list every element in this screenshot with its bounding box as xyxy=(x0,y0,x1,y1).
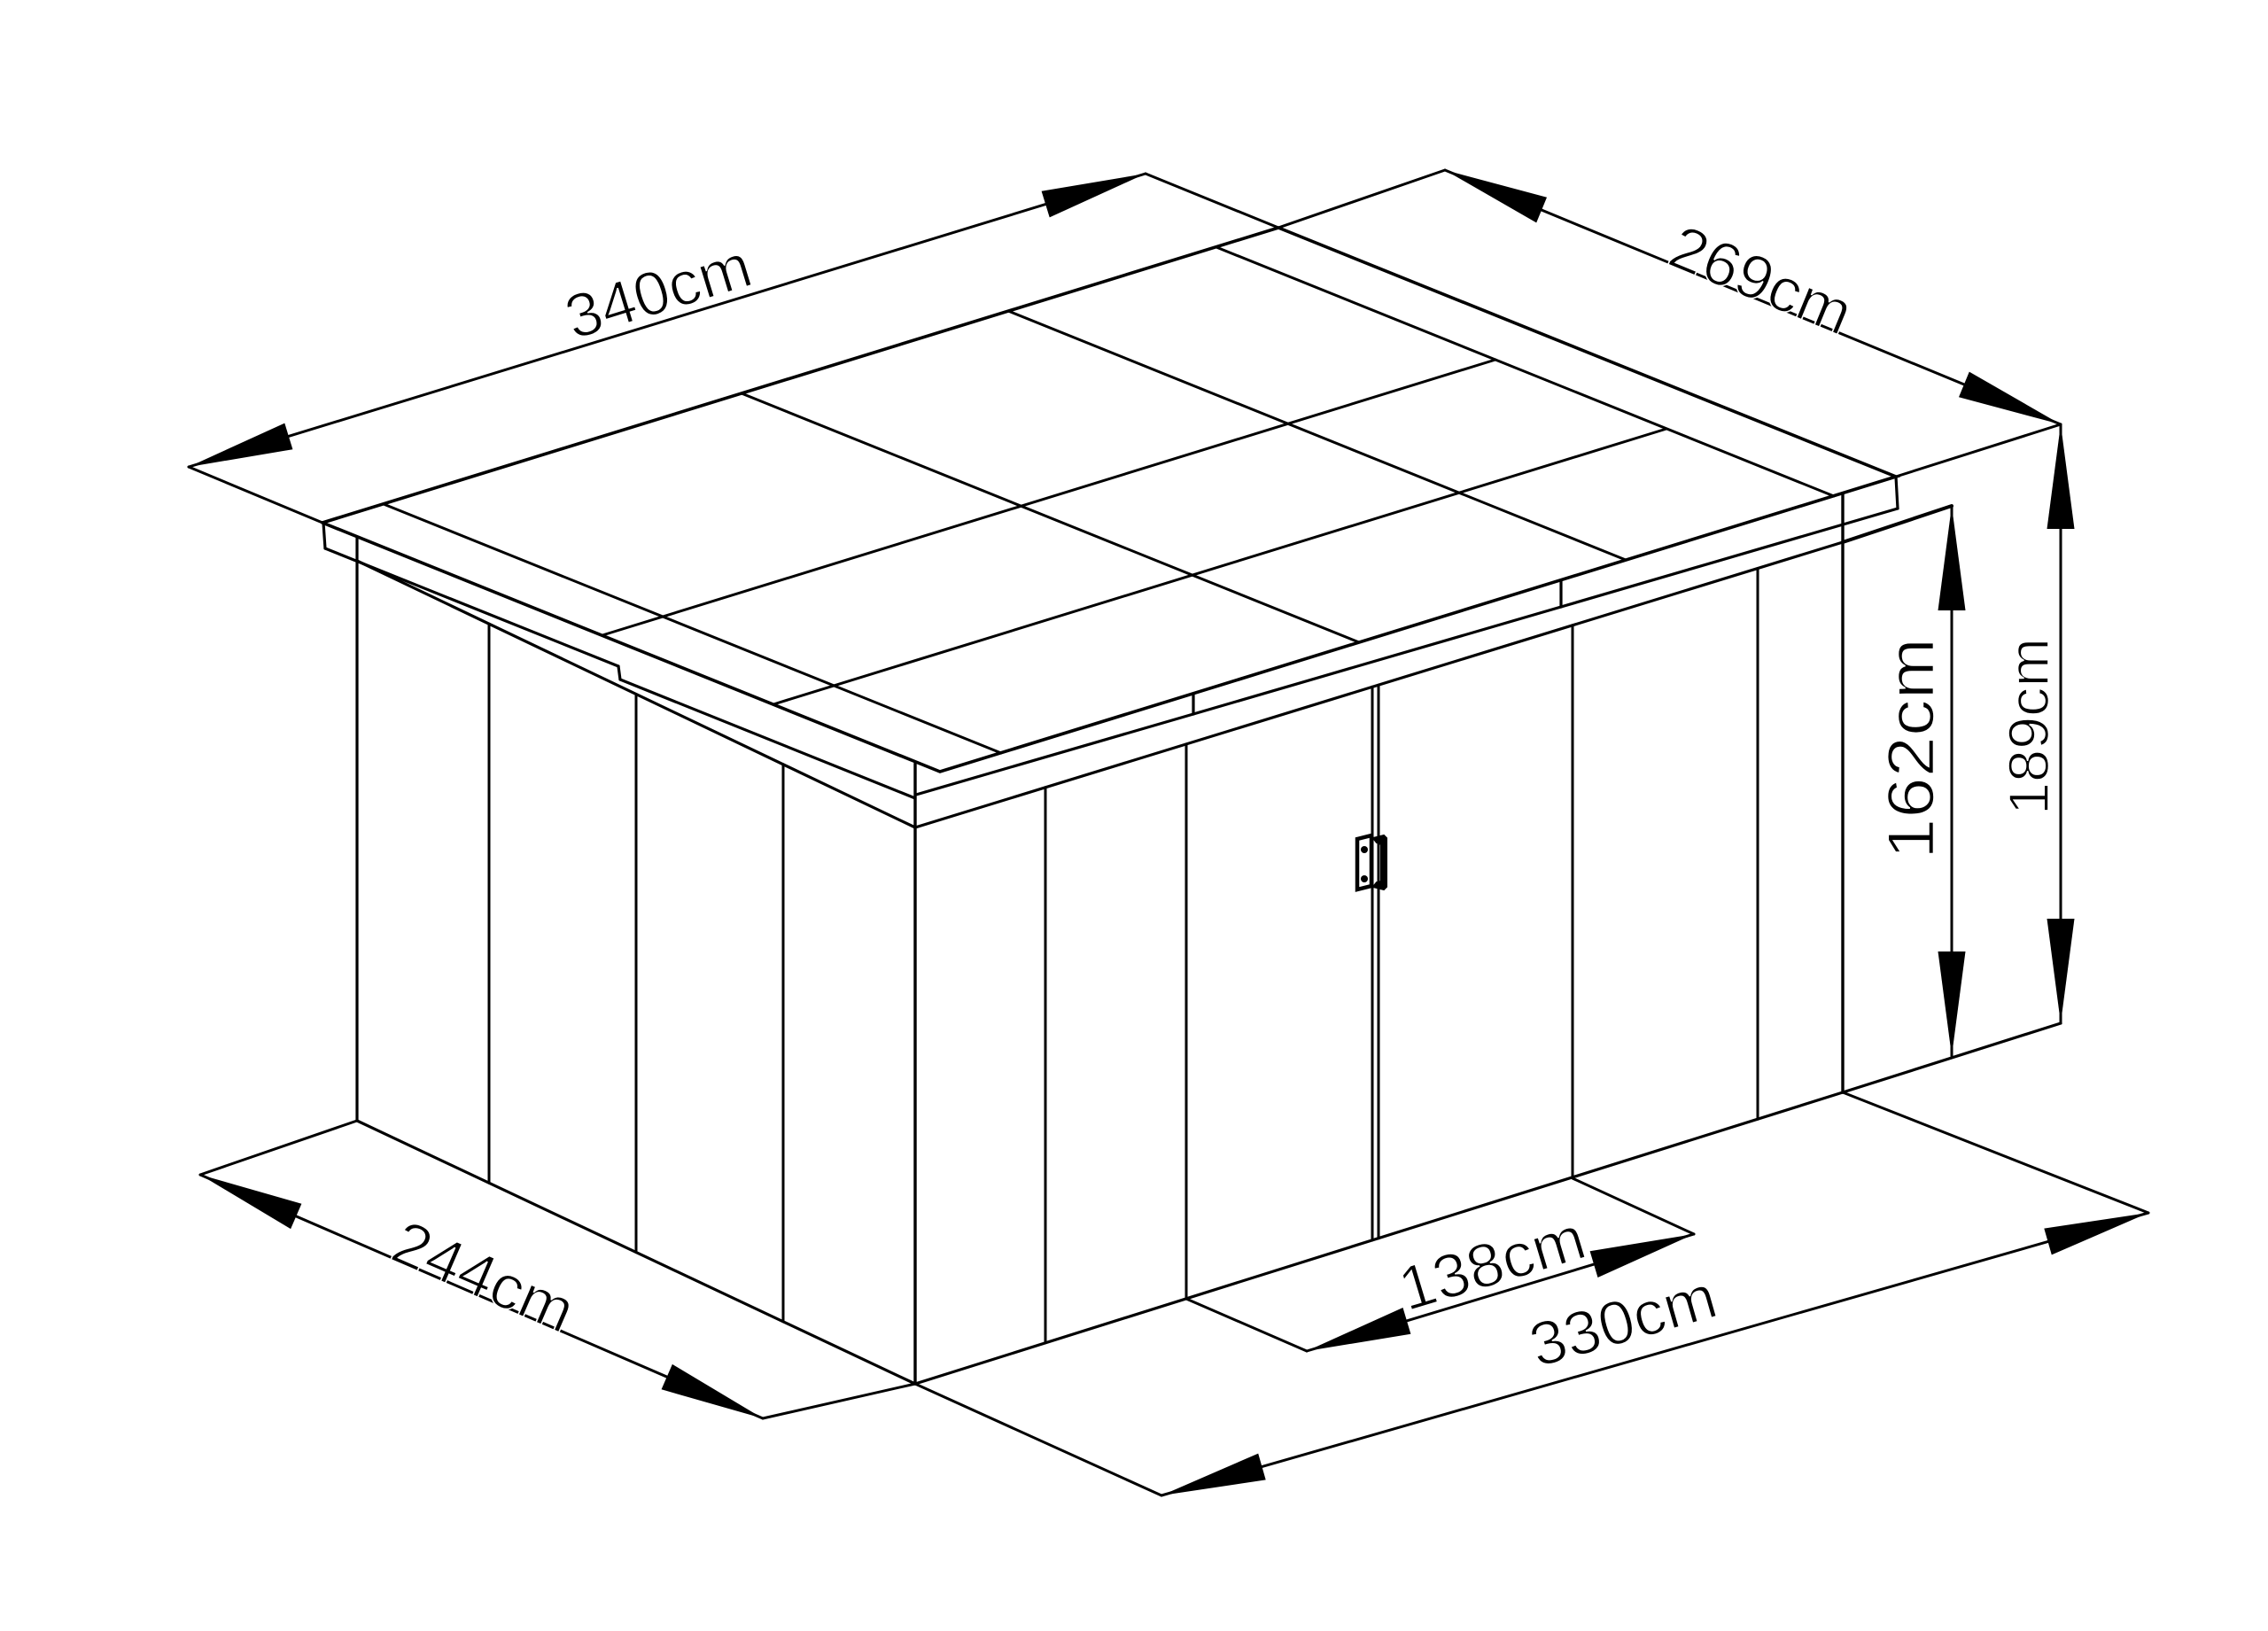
svg-text:269cm: 269cm xyxy=(1660,212,1862,348)
svg-text:162cm: 162cm xyxy=(1875,638,1948,859)
svg-text:244cm: 244cm xyxy=(383,1207,585,1346)
svg-text:340cm: 340cm xyxy=(557,230,759,353)
svg-text:189cm: 189cm xyxy=(1997,638,2061,815)
